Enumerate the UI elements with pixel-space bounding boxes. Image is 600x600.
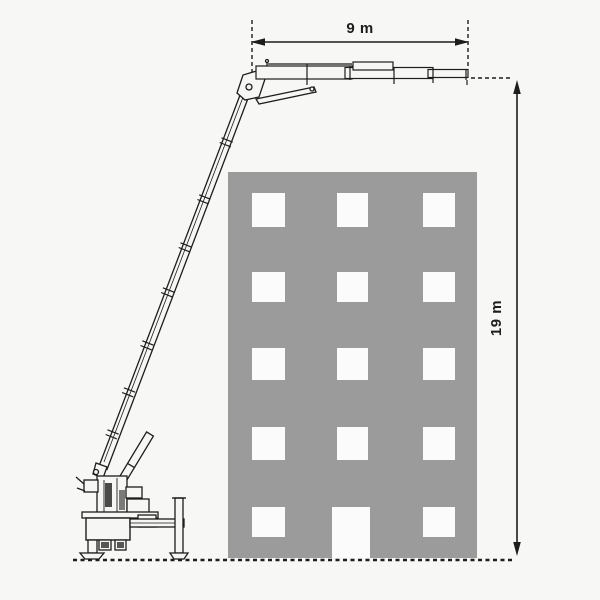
dimension-19m: 19 m	[471, 78, 521, 556]
outrigger-jack	[175, 498, 183, 553]
building-window	[423, 272, 455, 302]
building-window	[337, 272, 368, 302]
dimension-label-19m: 19 m	[488, 300, 505, 336]
outrigger-foot-pad	[170, 553, 188, 559]
building-window	[252, 193, 285, 227]
building-window	[252, 427, 285, 460]
front-leg	[88, 540, 97, 553]
building-window	[252, 348, 285, 380]
arrowhead-up	[513, 80, 521, 94]
arrowhead-right	[455, 38, 469, 46]
building-window	[252, 272, 285, 302]
building	[228, 172, 477, 558]
arrowhead-down	[513, 542, 521, 556]
arrowhead-left	[251, 38, 265, 46]
front-foot-pad	[80, 553, 104, 559]
building-window	[337, 348, 368, 380]
building-window	[423, 507, 455, 537]
dimension-label-9m: 9 m	[346, 20, 373, 37]
building-window	[423, 427, 455, 460]
crane-chassis	[80, 518, 130, 559]
diagram-canvas: 9 m 19 m	[0, 0, 600, 600]
building-window	[337, 427, 368, 460]
building-window	[423, 348, 455, 380]
building-window	[423, 193, 455, 227]
building-window	[337, 193, 368, 227]
crane-diagram: 9 m 19 m	[0, 0, 600, 600]
building-window	[252, 507, 285, 537]
building-door	[332, 507, 370, 558]
crane-jib	[256, 62, 468, 85]
